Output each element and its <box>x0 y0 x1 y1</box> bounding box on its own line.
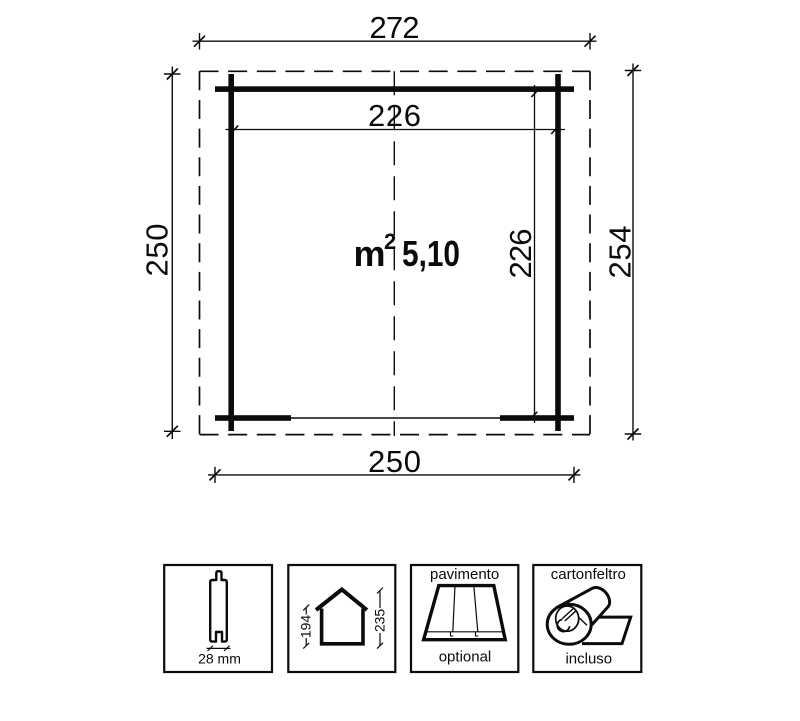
svg-text:cartonfeltro: cartonfeltro <box>551 566 626 583</box>
svg-text:2: 2 <box>384 229 396 254</box>
svg-text:235: 235 <box>372 609 388 633</box>
svg-text:28 mm: 28 mm <box>198 651 241 667</box>
svg-text:pavimento: pavimento <box>430 566 499 583</box>
svg-text:226: 226 <box>503 229 538 279</box>
svg-text:226: 226 <box>368 98 421 133</box>
svg-text:5,10: 5,10 <box>402 233 460 274</box>
svg-text:m: m <box>354 233 386 274</box>
svg-text:optional: optional <box>439 649 492 666</box>
svg-text:194: 194 <box>298 615 314 639</box>
svg-text:254: 254 <box>603 226 638 279</box>
svg-text:250: 250 <box>140 224 175 277</box>
svg-text:250: 250 <box>368 444 421 479</box>
svg-text:272: 272 <box>370 10 420 45</box>
svg-text:incluso: incluso <box>565 651 612 668</box>
